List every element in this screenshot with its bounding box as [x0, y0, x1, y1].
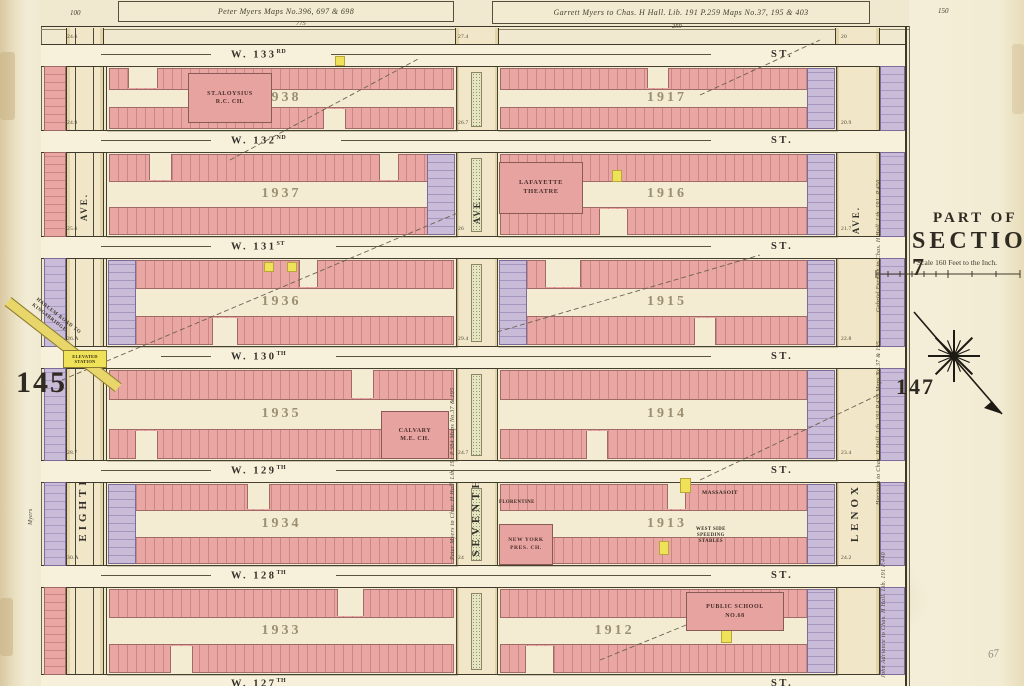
- atlas-plate: Peter Myers Maps No.396, 697 & 698 775 G…: [0, 0, 1024, 686]
- st-aloysius-church: ST.ALOYSIUSR.C. CH.: [188, 73, 272, 123]
- dimension: 23.4: [841, 450, 851, 456]
- deed-note-seventh: Peter Myers to Chas. H Hall. Lib. 191 P.…: [450, 300, 456, 560]
- dimension: 26.A: [67, 336, 79, 342]
- lafayette-theatre: LAFAYETTE THEATRE: [499, 162, 583, 214]
- dimension: 29.4: [458, 336, 468, 342]
- dimension: 30.A: [67, 555, 79, 561]
- frame-building: [680, 478, 691, 493]
- frame-building: [287, 262, 297, 272]
- deed-note-lenox-bottom: John Adriance to Chas. H Hall. Lib. 191 …: [881, 538, 887, 678]
- dimension: 28.7: [67, 450, 77, 456]
- deed-note-west-margin: Myers: [28, 470, 34, 525]
- dimension: 24.7: [458, 450, 468, 456]
- dimension: 25.6: [67, 226, 77, 232]
- dimension: 24.9: [67, 120, 77, 126]
- dimension: 24.6: [67, 34, 77, 40]
- dimension: 27.4: [458, 34, 468, 40]
- dimension: 24: [458, 555, 464, 561]
- frame-building: [264, 262, 274, 272]
- frame-building: [335, 56, 345, 66]
- dimension: 20.9: [841, 120, 851, 126]
- west-side-stables-label: WEST SIDESPEEDINGSTABLES: [696, 527, 726, 544]
- dimension: 26: [458, 226, 464, 232]
- deed-note-lenox-lower: Harrison to Chas. H Hall. Lib. 191 P.439…: [876, 330, 882, 505]
- calvary-church: CALVARYM.E. CH.: [381, 411, 449, 459]
- dimension: 26.7: [458, 120, 468, 126]
- frame-building: [612, 170, 622, 182]
- farm-line-overlay: [0, 0, 1024, 686]
- ny-presbyterian-church: NEW YORK PRES. CH.: [499, 524, 553, 565]
- dimension: 24.2: [841, 555, 851, 561]
- public-school-68: PUBLIC SCHOOLNO.68: [686, 592, 784, 631]
- frame-building: [659, 541, 669, 555]
- dimension: 20: [841, 34, 847, 40]
- massasoit-label: MASSASOIT: [702, 490, 738, 497]
- deed-note-lenox-upper: Gabriel Furman to Chas. H Hall. Lib. 191…: [876, 72, 882, 312]
- dimension: 21.7: [841, 226, 851, 232]
- dimension: 22.8: [841, 336, 851, 342]
- elevated-station: ELEVATED STATION: [63, 350, 107, 368]
- florentine-label: FLORENTINE: [499, 500, 535, 506]
